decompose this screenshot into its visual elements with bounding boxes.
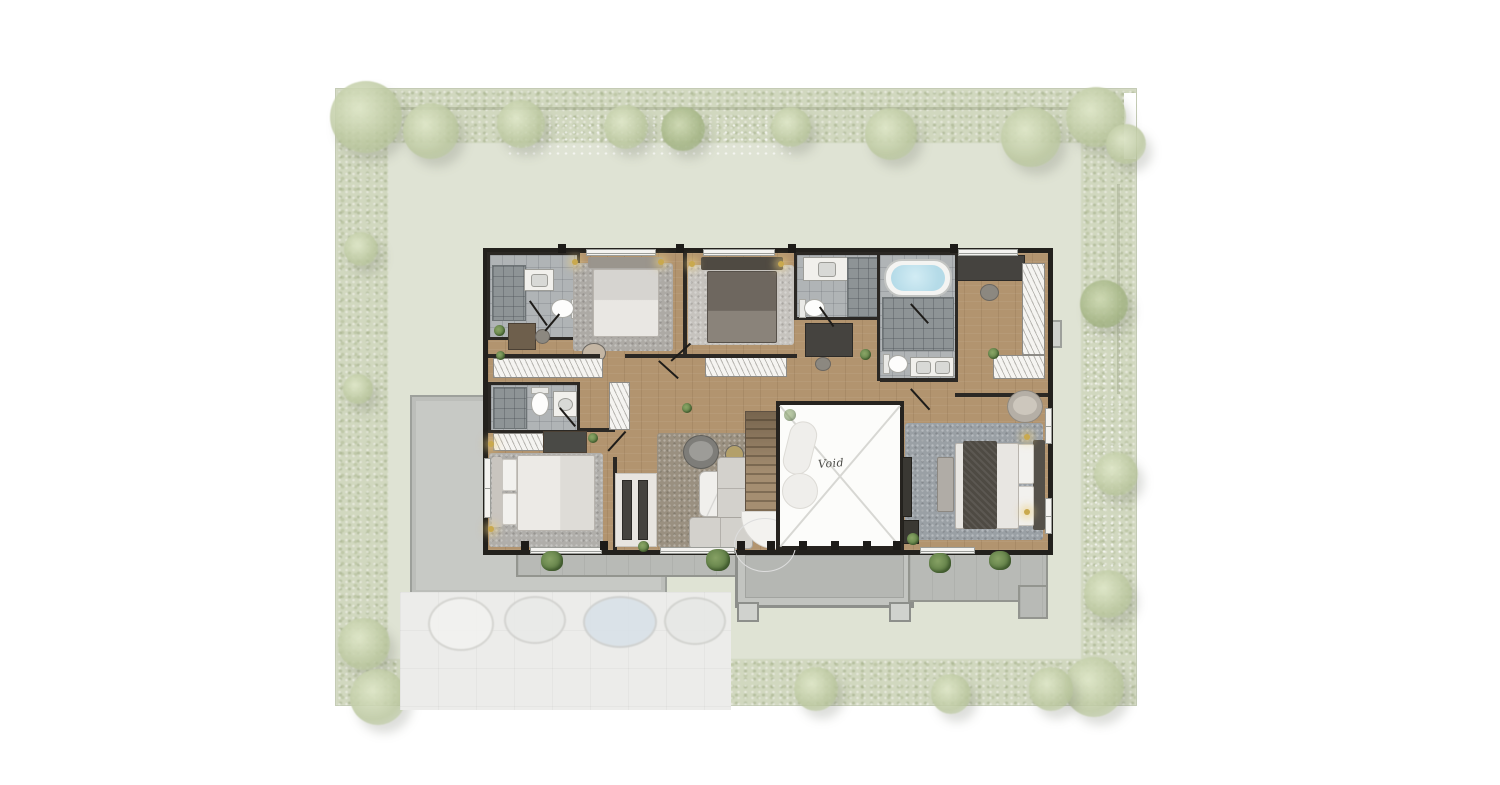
- staircase: [745, 411, 781, 525]
- wardrobe-bedroom-2: [493, 358, 603, 378]
- window: [703, 249, 775, 256]
- vanity-3: [803, 257, 849, 281]
- master-bathroom: [880, 255, 955, 378]
- ghost-lounge-chair: [780, 418, 820, 477]
- ghost-plant-icon: [784, 409, 796, 421]
- plant-icon: [496, 351, 505, 360]
- plant-icon: [494, 325, 505, 336]
- bed-2-mattress: [593, 269, 659, 337]
- cushion-seam: [720, 518, 721, 548]
- ghost-car: [428, 597, 494, 651]
- master-double-vanity: [910, 357, 954, 377]
- planter-icon: [541, 551, 563, 571]
- toilet-2: [531, 392, 549, 416]
- sconce-icon: [778, 261, 784, 267]
- bed-4-mattress: [517, 455, 595, 531]
- sconce-icon: [488, 526, 494, 532]
- window: [586, 249, 656, 256]
- walkin-wardrobe-bottom: [993, 355, 1045, 379]
- dressing-stool: [980, 284, 999, 301]
- bathtub-water: [891, 265, 945, 291]
- wardrobe-bedroom-3: [705, 357, 787, 377]
- dressing-counter: [957, 255, 1025, 281]
- corridor-vanity-counter: [805, 323, 853, 357]
- bathroom-3: [797, 255, 880, 317]
- tree-icon: [1001, 107, 1061, 167]
- porch-column-left: [737, 602, 759, 622]
- shower-2: [493, 387, 527, 429]
- tree-icon: [343, 374, 373, 404]
- tree-icon: [1094, 452, 1138, 496]
- door-frame-tab: [600, 541, 608, 550]
- plant-icon: [588, 433, 598, 443]
- stairs-shadow: [746, 412, 780, 474]
- tree-icon: [1029, 667, 1073, 711]
- sink-icon: [531, 274, 548, 287]
- sconce-icon: [689, 261, 695, 267]
- planter-icon: [929, 553, 951, 573]
- sconce-icon: [658, 259, 664, 265]
- hall-console-left: [622, 480, 632, 540]
- sink-icon: [935, 361, 950, 374]
- ghost-car: [583, 596, 657, 648]
- window: [1045, 498, 1052, 534]
- shower-3: [847, 257, 880, 317]
- wall: [625, 354, 797, 358]
- master-bed-headboard: [1033, 440, 1045, 530]
- tree-icon: [661, 107, 705, 151]
- master-bed-throw: [963, 441, 997, 529]
- window: [1045, 408, 1052, 444]
- wall: [683, 253, 687, 358]
- door-frame-tab: [558, 244, 566, 253]
- armchair-seat: [1013, 396, 1037, 415]
- tree-icon: [604, 105, 648, 149]
- ghost-car: [664, 597, 726, 645]
- tree-icon: [1064, 657, 1124, 717]
- tree-icon: [931, 674, 971, 714]
- sconce-icon: [1024, 434, 1030, 440]
- tree-icon: [497, 100, 545, 148]
- void-opening: Void: [780, 405, 900, 546]
- sliding-door: [530, 547, 602, 554]
- master-armchair: [1007, 390, 1043, 423]
- planter-icon: [706, 549, 730, 571]
- toilet-4: [888, 355, 908, 373]
- door-frame-tab: [799, 541, 807, 550]
- tree-icon: [344, 232, 378, 266]
- door-frame-tab: [893, 541, 901, 550]
- door-frame-tab: [950, 244, 958, 253]
- toilet-1: [551, 299, 574, 318]
- plant-icon: [638, 541, 649, 552]
- living-armchair: [683, 435, 719, 469]
- window: [958, 249, 1018, 256]
- tree-icon: [1084, 570, 1132, 618]
- master-tv-console: [902, 457, 912, 517]
- sconce-icon: [572, 259, 578, 265]
- tree-icon: [350, 669, 406, 725]
- door-frame-tab: [767, 541, 775, 550]
- door-frame-tab: [737, 541, 745, 550]
- hall-console-right: [638, 480, 648, 540]
- floor-plan-canvas: Void: [0, 0, 1500, 785]
- sconce-icon: [1024, 509, 1030, 515]
- wall: [880, 378, 958, 382]
- house-second-floor: Void: [483, 248, 1053, 555]
- armchair-seat: [689, 441, 713, 461]
- bathtub: [884, 259, 952, 297]
- door-frame-tab: [788, 244, 796, 253]
- door-frame-tab: [831, 541, 839, 550]
- flower-hedge-right: [1084, 289, 1124, 569]
- plant-icon: [682, 403, 692, 413]
- door-frame-tab: [676, 244, 684, 253]
- tree-icon: [338, 618, 390, 670]
- master-shower: [882, 297, 954, 351]
- sink-icon: [818, 262, 836, 277]
- corridor-vanity-stool: [815, 357, 831, 371]
- door-frame-tab: [521, 541, 529, 550]
- bed-3-headboard: [701, 257, 783, 270]
- sink-icon: [916, 361, 931, 374]
- ghost-round-chair: [782, 473, 818, 509]
- ghost-car: [504, 596, 566, 644]
- sconce-icon: [488, 441, 494, 447]
- fence-line-top: [396, 107, 1076, 110]
- bed-4-headboard: [492, 457, 502, 527]
- vanity-1: [524, 269, 554, 291]
- porch-column-right: [889, 602, 911, 622]
- tree-icon: [794, 667, 838, 711]
- flower-hedge-top: [506, 115, 796, 157]
- hall-linen-closet: [609, 382, 630, 430]
- planter-icon: [989, 551, 1011, 570]
- walkin-wardrobe-right: [1022, 263, 1045, 355]
- bed-2-headboard: [588, 257, 663, 268]
- desk-1: [508, 323, 536, 350]
- tree-icon: [771, 107, 811, 147]
- desk-1-chair: [535, 329, 550, 344]
- tree-icon: [330, 81, 402, 153]
- master-bed-pillow: [1017, 444, 1034, 484]
- tree-icon: [1106, 124, 1146, 164]
- void-label: Void: [818, 456, 845, 471]
- bed-4-pillow: [502, 459, 517, 491]
- tree-icon: [403, 103, 459, 159]
- shower-1: [492, 265, 526, 321]
- plant-icon: [988, 348, 999, 359]
- plant-icon: [860, 349, 871, 360]
- master-bed-bench: [937, 457, 954, 512]
- bed-3-mattress: [707, 271, 777, 343]
- sliding-door: [920, 547, 975, 554]
- tree-icon: [865, 108, 917, 160]
- desk-2: [543, 431, 587, 453]
- window: [484, 458, 491, 518]
- bed-4-pillow: [502, 493, 517, 525]
- door-frame-tab: [863, 541, 871, 550]
- bathroom-2: [491, 385, 577, 430]
- tree-icon: [1080, 280, 1128, 328]
- balcony-right-step: [1018, 585, 1048, 619]
- master-bed-pillow: [1017, 486, 1034, 526]
- plant-icon: [907, 533, 919, 545]
